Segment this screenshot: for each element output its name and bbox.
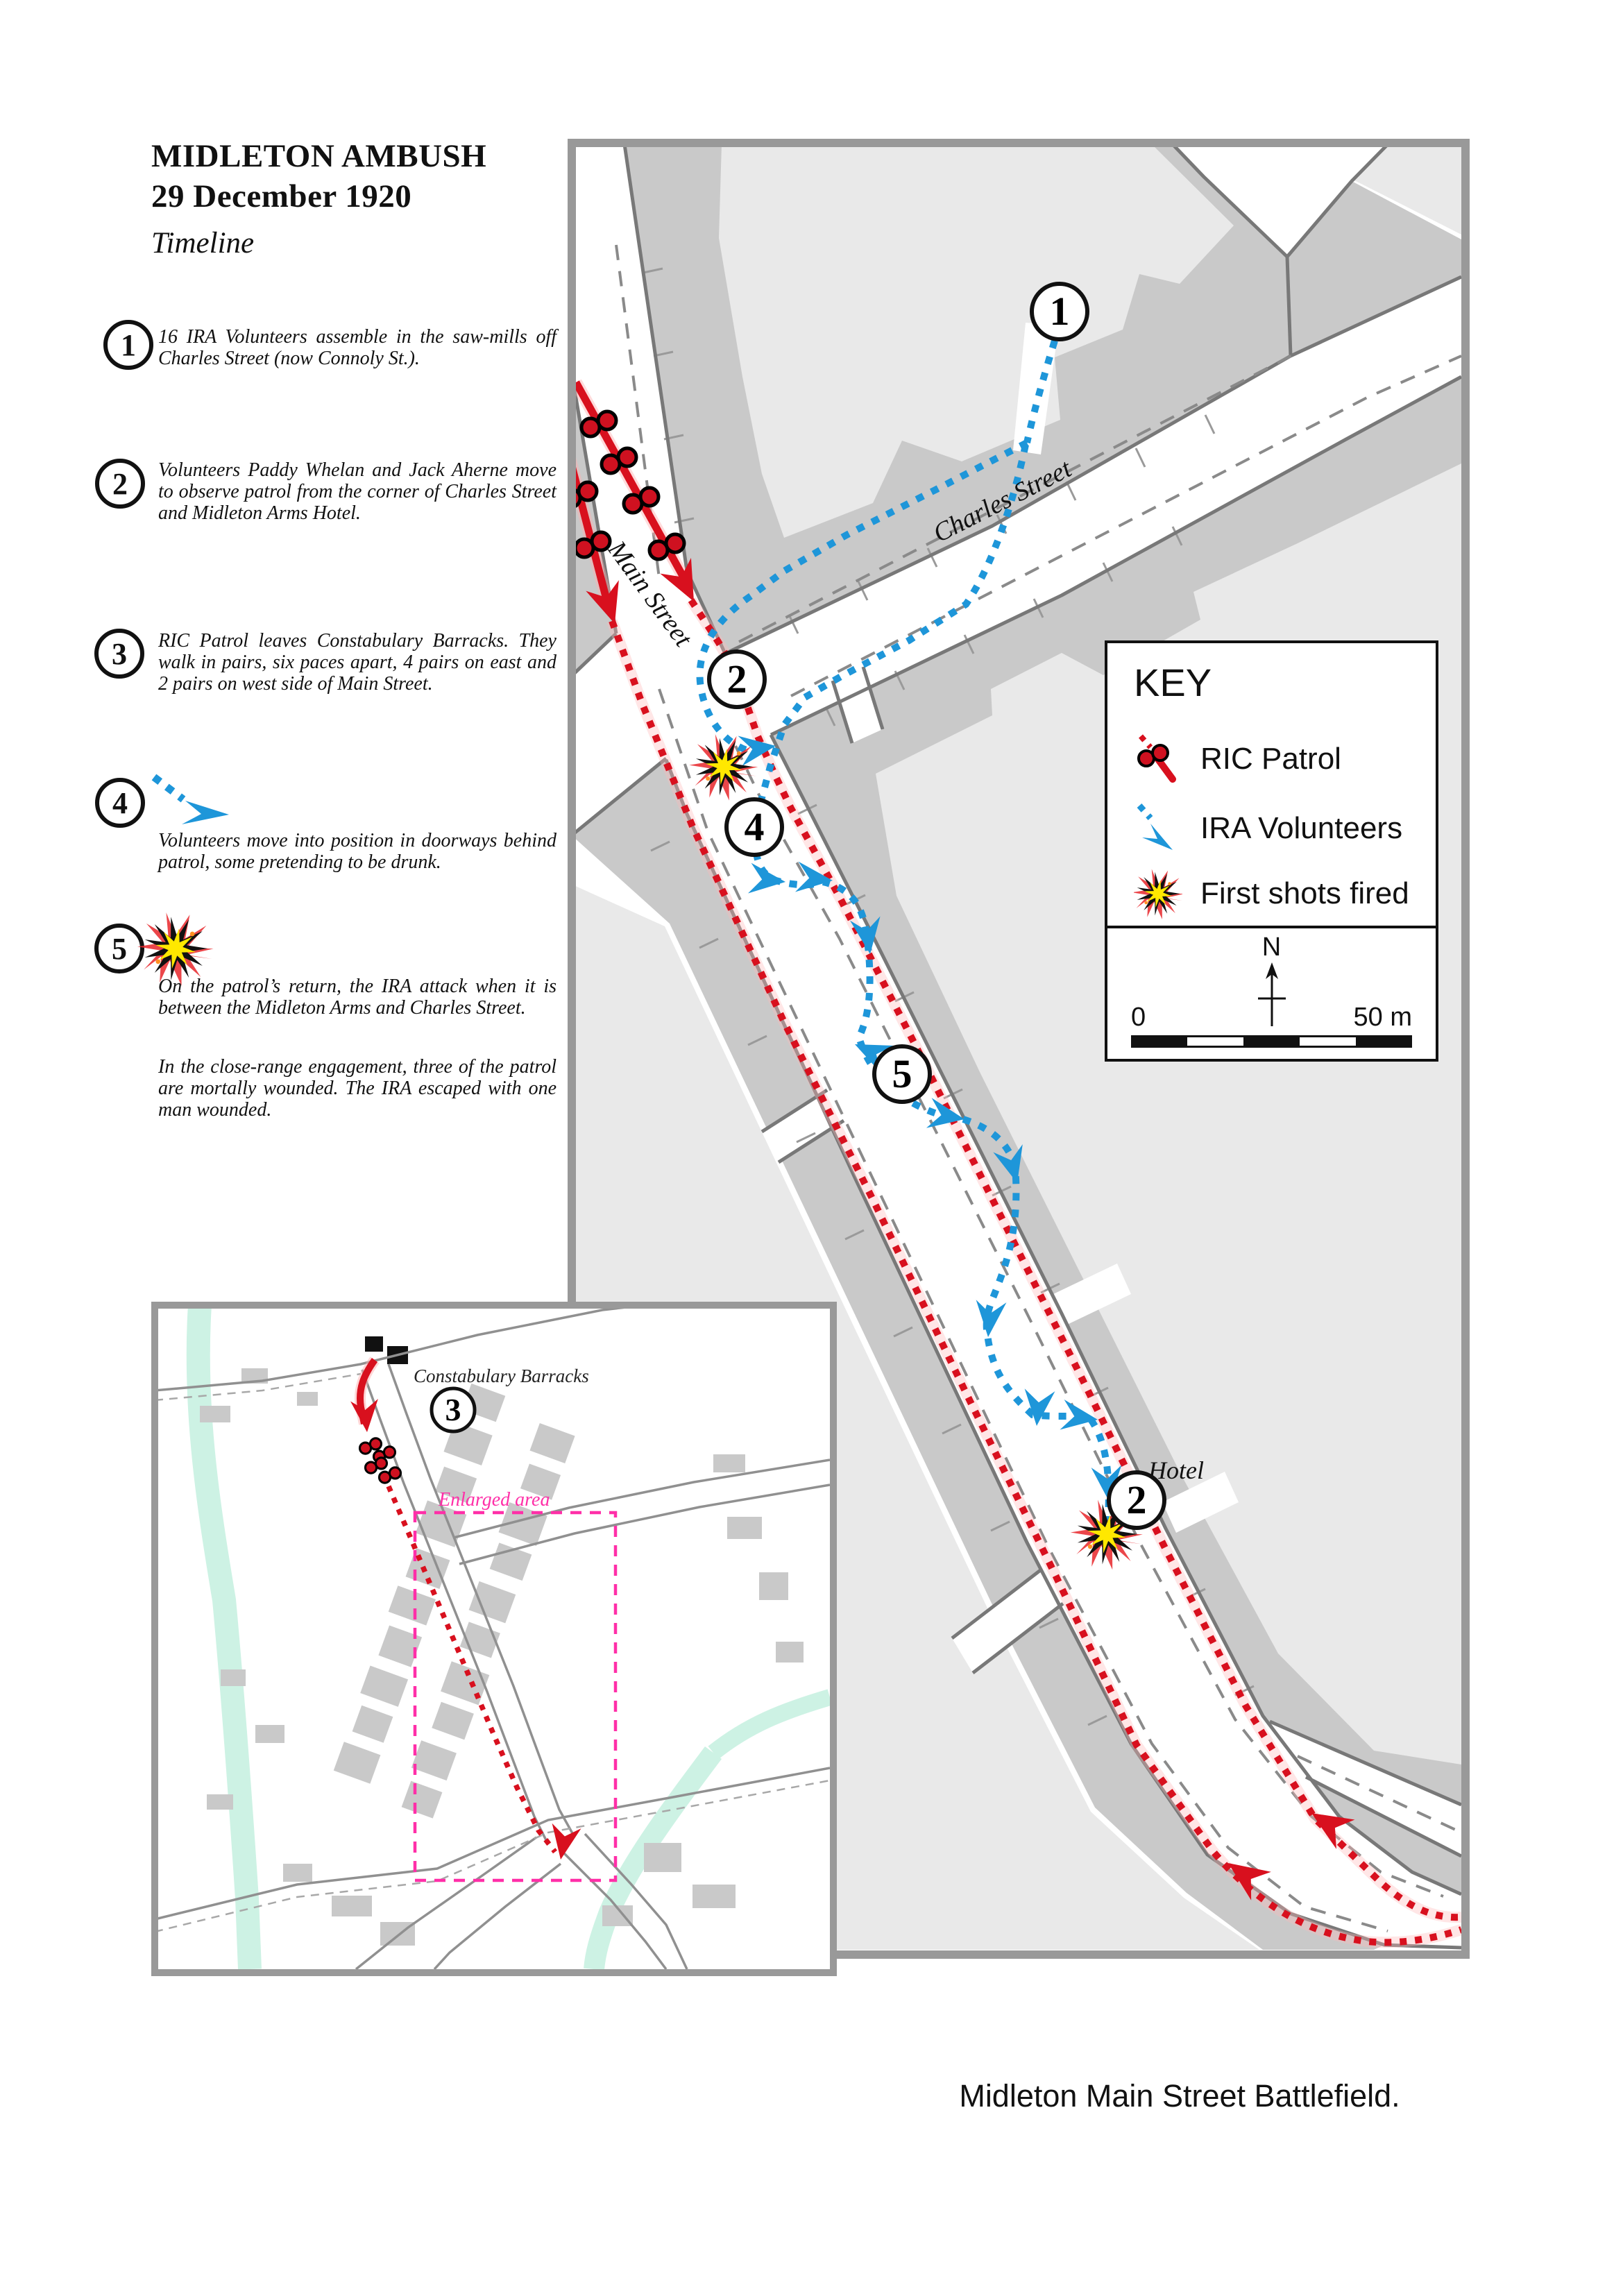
timeline-text-5b: In the close-range engagement, three of … [158,1056,556,1121]
constabulary-barracks-label: Constabulary Barracks [414,1366,589,1386]
timeline-text-3: RIC Patrol leaves Constabulary Barracks.… [158,630,556,695]
page-title-line3: Timeline [151,226,568,260]
page-title-line2: 29 December 1920 [151,176,568,216]
timeline-number-1: 1 [103,320,153,370]
timeline-text-2: Volunteers Paddy Whelan and Jack Aherne … [158,459,556,524]
timeline-text-4: Volunteers move into position in doorway… [158,830,556,873]
key-first-shots-icon [1134,867,1182,921]
key-legend-section: KEY RIC Patrol IRA Volunteers [1107,643,1436,928]
map-marker-1: 1 [1032,284,1087,339]
map-marker-2-junction: 2 [709,652,765,707]
key-label-ira: IRA Volunteers [1200,811,1402,846]
map-marker-2-junction-label: 2 [727,656,747,701]
inset-marker-3-label: 3 [445,1392,461,1427]
scale-bar-segments [1131,1035,1412,1048]
key-title: KEY [1134,660,1212,705]
ira-arrow-icon [147,772,237,831]
key-label-shots: First shots fired [1200,876,1409,911]
timeline-number-3: 3 [94,629,144,679]
key-label-ric: RIC Patrol [1200,742,1341,776]
key-box: KEY RIC Patrol IRA Volunteers [1105,640,1438,1062]
timeline-number-4: 4 [95,778,145,828]
inset-map-canvas: Constabulary Barracks Enlarged area 3 [158,1309,830,1969]
timeline-number-5-label: 5 [112,931,127,967]
north-label: N [1251,933,1293,962]
map-marker-5: 5 [874,1046,930,1102]
timeline-number-4-label: 4 [112,785,128,821]
enlarged-area-label: Enlarged area [438,1489,550,1511]
map-marker-2-hotel: 2 [1109,1472,1164,1528]
map-marker-4: 4 [726,799,782,855]
page: MIDLETON AMBUSH 29 December 1920 Timelin… [0,0,1623,2296]
timeline-text-1: 16 IRA Volunteers assemble in the saw-mi… [158,326,556,369]
inset-map: Constabulary Barracks Enlarged area 3 [151,1302,837,1976]
map-marker-2-hotel-label: 2 [1127,1477,1147,1522]
key-compass-section: N 0 50 m [1107,928,1436,1059]
timeline-number-1-label: 1 [121,328,136,363]
scale-bar: 0 50 m [1131,1003,1412,1048]
inset-marker-3: 3 [432,1388,475,1431]
timeline-number-3-label: 3 [112,636,127,672]
page-title-line1: MIDLETON AMBUSH [151,136,568,176]
ric-patrol-icon [1134,732,1182,786]
scale-label-max: 50 m [1354,1003,1412,1032]
title-block: MIDLETON AMBUSH 29 December 1920 Timelin… [151,136,568,260]
timeline-text-5: On the patrol’s return, the IRA attack w… [158,976,556,1019]
map-marker-1-label: 1 [1050,289,1070,334]
map-marker-5-label: 5 [892,1051,912,1096]
timeline-number-2-label: 2 [112,466,128,502]
timeline-number-2: 2 [95,459,145,509]
scale-label-zero: 0 [1131,1003,1146,1032]
map-caption: Midleton Main Street Battlefield. [867,2078,1492,2114]
ira-volunteers-icon [1134,801,1182,856]
map-marker-4-label: 4 [745,804,765,849]
